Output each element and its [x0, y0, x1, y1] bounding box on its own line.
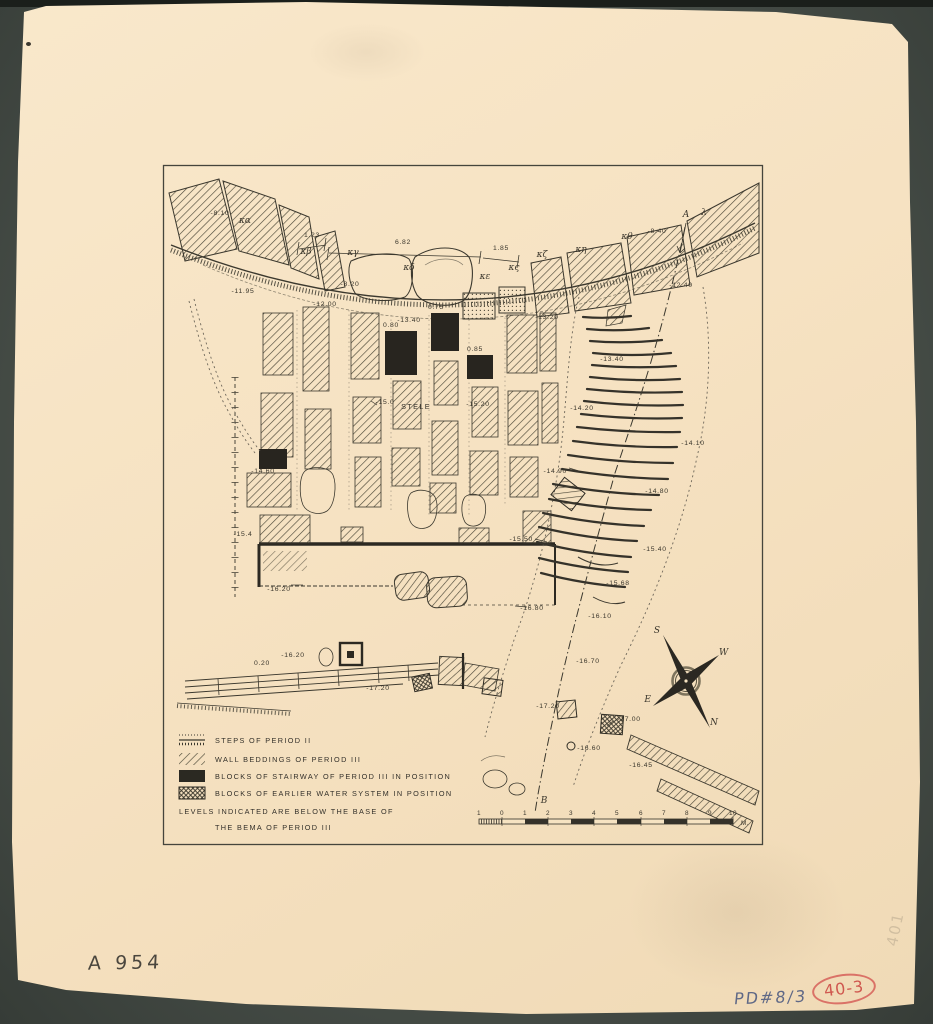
- elevation: -16.10: [588, 613, 611, 620]
- scale-tick: 10: [729, 810, 737, 817]
- elevation: -16.20: [267, 586, 290, 593]
- elevation: -16.80: [520, 605, 543, 612]
- left-guides: [189, 299, 260, 597]
- legend: STEPS OF PERIOD II WALL BEDDINGS OF PERI…: [179, 735, 453, 832]
- reference-number: PD#8/3: [733, 987, 808, 1009]
- elevation: -8.40: [648, 228, 667, 235]
- elevation: -16.60: [577, 745, 600, 752]
- elevation: -15.0: [376, 399, 395, 406]
- elevation: -15.50: [510, 536, 533, 543]
- compass-e-label: E: [643, 695, 651, 705]
- scale-tick: 0: [500, 810, 504, 817]
- legend-note-line1: LEVELS INDICATED ARE BELOW THE BASE OF: [179, 807, 394, 816]
- elevation: -11.95: [232, 288, 255, 295]
- compass-s-label: S: [654, 626, 660, 636]
- compass-w-label: W: [719, 648, 729, 658]
- elevation: -16.45: [629, 762, 652, 769]
- legend-symbol-crosshatch: [179, 787, 205, 799]
- elevation: -17.20: [536, 703, 559, 710]
- elevation: -15.20: [466, 401, 489, 408]
- scale-tick: 1: [523, 810, 527, 817]
- scale-tick: 5: [615, 810, 619, 817]
- block-label: λ: [700, 208, 707, 218]
- scale-tick: 7: [662, 810, 666, 817]
- scale-tick: 4: [592, 810, 596, 817]
- scale-tick: 3: [569, 810, 573, 817]
- scale-unit: M.: [741, 820, 749, 827]
- point-b-label: B: [540, 796, 548, 806]
- faint-pencil-note: 401: [883, 910, 908, 948]
- block-height: 0.80: [383, 322, 399, 329]
- legend-item-label: BLOCKS OF EARLIER WATER SYSTEM IN POSITI…: [215, 789, 453, 798]
- block-height: 0.85: [467, 346, 483, 353]
- elevation: -12.00: [313, 301, 336, 308]
- platform: [259, 511, 555, 608]
- elevation: -8.10: [211, 210, 230, 217]
- legend-item-label: STEPS OF PERIOD II: [215, 736, 311, 745]
- elevation: -14.60: [251, 468, 274, 475]
- legend-symbol-solid: [179, 770, 205, 782]
- legend-note-line2: THE BEMA OF PERIOD III: [215, 823, 332, 832]
- catalog-number: A 954: [87, 951, 163, 974]
- scale-tick: 2: [546, 810, 550, 817]
- southwest-structure: [177, 643, 499, 714]
- block-label: κς: [508, 263, 521, 273]
- dimension-value: 6.82: [395, 239, 411, 246]
- paper-smudge: [626, 832, 846, 992]
- elevation: -17.20: [366, 685, 389, 692]
- scale-tick: 8: [685, 810, 689, 817]
- block-label: κθ: [620, 232, 633, 242]
- block-label: κα: [238, 216, 251, 226]
- elevation: -16.20: [281, 652, 304, 659]
- legend-item-label: WALL BEDDINGS OF PERIOD III: [215, 755, 361, 764]
- elevation: -13.40: [600, 356, 623, 363]
- scale-bar: 1 0 1 2 3 4 5 6 7 8 9 10 M.: [477, 810, 749, 827]
- elevation: -14.90: [544, 468, 567, 475]
- elevation: -12.40: [669, 282, 692, 289]
- block-label: κβ: [299, 247, 311, 257]
- elevation: -14.10: [681, 440, 704, 447]
- elevation: -8.20: [341, 281, 360, 288]
- legend-symbol-steps: [179, 735, 205, 744]
- elevation: -13.40: [397, 317, 420, 324]
- elevation: -16.70: [576, 658, 599, 665]
- stele-label: STELE: [401, 402, 431, 411]
- scale-tick: 1: [477, 810, 481, 817]
- block-label: κη: [574, 245, 587, 255]
- compass-rose: S W E N: [643, 626, 729, 728]
- southeast-wall: [481, 735, 759, 833]
- block-label: κγ: [346, 248, 359, 258]
- site-plan-drawing: S W E N 1 0 1: [163, 165, 763, 845]
- scanner-background: S W E N 1 0 1: [0, 0, 933, 1024]
- red-stamp: 40-3: [810, 970, 877, 1008]
- point-a-label: A: [682, 210, 690, 220]
- elevation: -15.4: [234, 531, 253, 538]
- block-label: κζ: [536, 250, 549, 260]
- dimension-value: 1.23: [304, 232, 320, 239]
- top-wall: [169, 179, 759, 319]
- block-label: κε: [479, 272, 491, 282]
- scale-tick: 6: [639, 810, 643, 817]
- paper-speck: [26, 42, 31, 46]
- block-height: 0.75: [428, 304, 444, 311]
- legend-symbol-hatch: [179, 753, 205, 765]
- legend-item-label: BLOCKS OF STAIRWAY OF PERIOD III IN POSI…: [215, 772, 451, 781]
- paper-sheet: S W E N 1 0 1: [6, 2, 926, 1018]
- elevation: -14.80: [645, 488, 668, 495]
- elevation: -13.20: [535, 314, 558, 321]
- elevation: -15.68: [606, 580, 629, 587]
- elevation: -17.00: [617, 716, 640, 723]
- dimension-value: 1.85: [493, 245, 509, 252]
- scale-tick: 9: [708, 810, 712, 817]
- compass-n-label: N: [709, 718, 719, 728]
- block-height: 0.20: [254, 660, 270, 667]
- block-label: κδ: [402, 263, 414, 273]
- elevation: -14.20: [570, 405, 593, 412]
- elevation: -15.40: [643, 546, 666, 553]
- paper-smudge: [306, 22, 426, 82]
